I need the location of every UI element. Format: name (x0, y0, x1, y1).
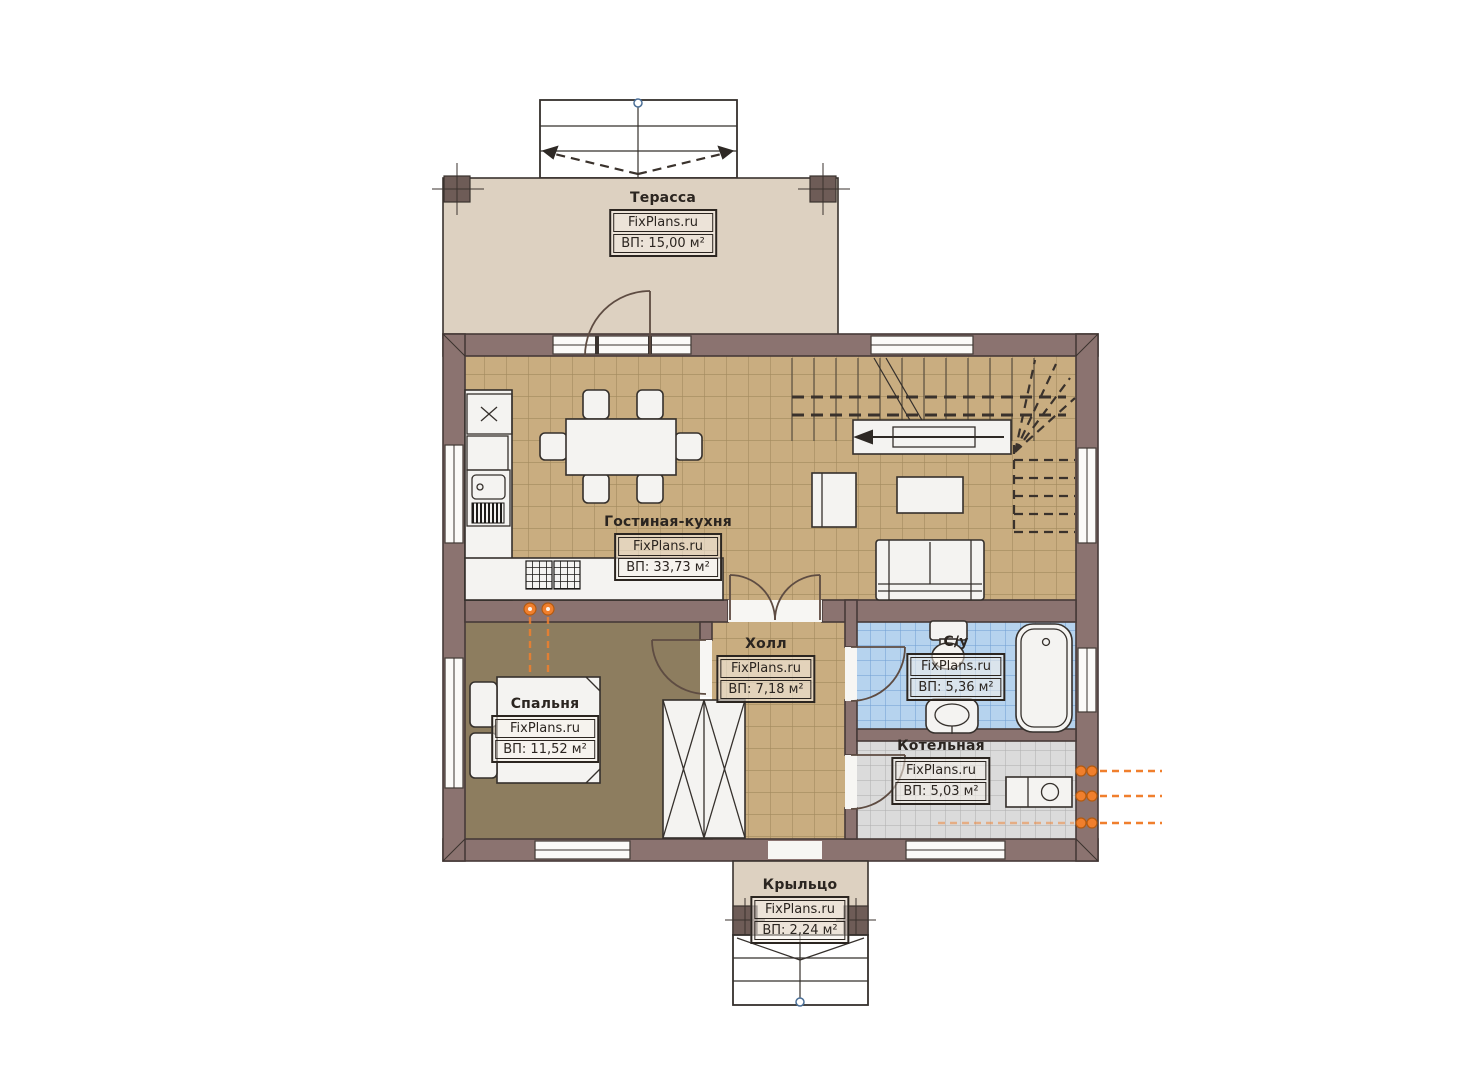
watermark: FixPlans.ru (613, 213, 713, 232)
bedroom-bottom-window (535, 841, 630, 859)
porch-steps (733, 935, 868, 1006)
room-area: ВП: 5,36 м² (910, 678, 1001, 697)
room-name: Гостиная-кухня (604, 514, 732, 530)
room-name: Котельная (891, 738, 990, 754)
room-area: ВП: 2,24 м² (754, 921, 845, 940)
room-name: Крыльцо (750, 877, 849, 893)
kitchen-window (445, 445, 463, 543)
room-area: ВП: 11,52 м² (495, 740, 595, 759)
chair (675, 433, 702, 460)
watermark: FixPlans.ru (720, 659, 811, 678)
chair (583, 474, 609, 503)
label-box: FixPlans.ru ВП: 2,24 м² (750, 896, 849, 944)
floor-plan-drawing (0, 0, 1473, 1080)
label-box: FixPlans.ru ВП: 7,18 м² (716, 655, 815, 703)
watermark: FixPlans.ru (910, 657, 1001, 676)
chair (637, 474, 663, 503)
label-box: FixPlans.ru ВП: 11,52 м² (491, 715, 599, 763)
room-name: С/у (906, 634, 1005, 650)
top-window (871, 336, 973, 354)
living-side-window (1078, 448, 1096, 543)
coffee-table (897, 477, 963, 513)
sofa (876, 540, 984, 600)
boiler-bottom-window (906, 841, 1005, 859)
terrace-doorset-window (553, 336, 691, 354)
watermark: FixPlans.ru (754, 900, 845, 919)
room-label-bathroom: С/у FixPlans.ru ВП: 5,36 м² (906, 634, 1005, 701)
label-box: FixPlans.ru ВП: 5,36 м² (906, 653, 1005, 701)
room-area: ВП: 15,00 м² (613, 234, 713, 253)
room-label-terrace: Терасса FixPlans.ru ВП: 15,00 м² (609, 190, 717, 257)
room-area: ВП: 33,73 м² (618, 558, 718, 577)
terrace-steps (540, 99, 737, 178)
bathtub (1016, 624, 1072, 732)
watermark: FixPlans.ru (895, 761, 986, 780)
dining-table (566, 419, 676, 475)
room-name: Холл (716, 636, 815, 652)
watermark: FixPlans.ru (495, 719, 595, 738)
armchair (812, 473, 856, 527)
label-box: FixPlans.ru ВП: 33,73 м² (614, 533, 722, 581)
room-area: ВП: 5,03 м² (895, 782, 986, 801)
room-label-bedroom: Спальня FixPlans.ru ВП: 11,52 м² (491, 696, 599, 763)
chair (583, 390, 609, 419)
room-label-boiler-room: Котельная FixPlans.ru ВП: 5,03 м² (891, 738, 990, 805)
room-name: Терасса (609, 190, 717, 206)
room-name: Спальня (491, 696, 599, 712)
floor-plan-canvas: Терасса FixPlans.ru ВП: 15,00 м² Гостина… (0, 0, 1473, 1080)
bathroom-window (1078, 648, 1096, 712)
watermark: FixPlans.ru (618, 537, 718, 556)
wardrobe (663, 700, 745, 838)
room-label-porch: Крыльцо FixPlans.ru ВП: 2,24 м² (750, 877, 849, 944)
chair (540, 433, 567, 460)
room-label-hall: Холл FixPlans.ru ВП: 7,18 м² (716, 636, 815, 703)
room-label-living-kitchen: Гостиная-кухня FixPlans.ru ВП: 33,73 м² (604, 514, 732, 581)
label-box: FixPlans.ru ВП: 15,00 м² (609, 209, 717, 257)
stair-landing-shelf (853, 420, 1011, 454)
bathroom-sink (926, 699, 978, 734)
label-box: FixPlans.ru ВП: 5,03 м² (891, 757, 990, 805)
chair (637, 390, 663, 419)
room-area: ВП: 7,18 м² (720, 680, 811, 699)
boiler-unit (1006, 777, 1072, 807)
bedroom-side-window (445, 658, 463, 788)
